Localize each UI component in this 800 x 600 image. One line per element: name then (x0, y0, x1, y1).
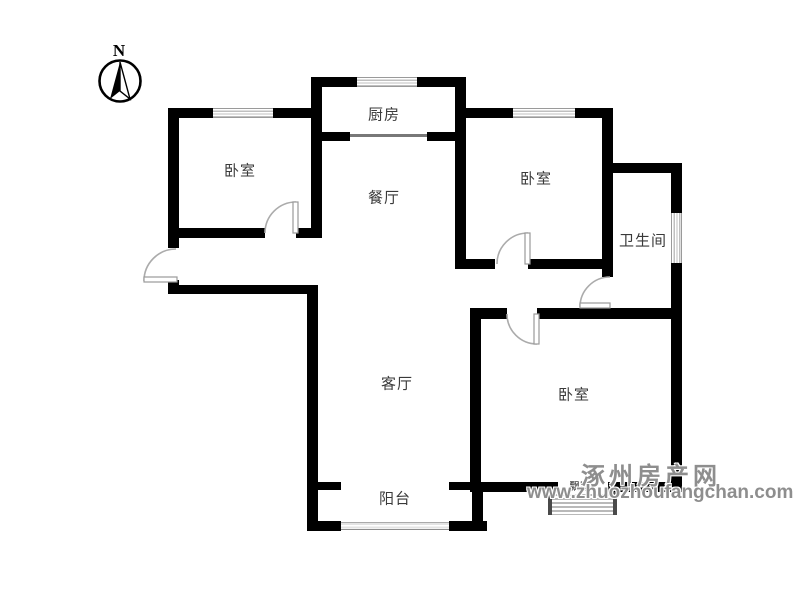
bedroom2-door-leaf (525, 233, 530, 264)
bedroom3-door-arc (507, 314, 537, 344)
room-label-bedroom-top-right: 卧室 (520, 168, 552, 189)
room-label-dining: 餐厅 (368, 187, 400, 208)
bedroom1-door-leaf (293, 202, 298, 233)
watermark-site-url: www.zhuozhoufangchan.com (527, 482, 793, 504)
room-label-kitchen: 厨房 (368, 104, 400, 125)
bedroom3-door-leaf (534, 314, 539, 344)
bedroom1-door-arc (265, 202, 296, 233)
door-swings-layer (0, 0, 800, 600)
room-label-bedroom-top-left: 卧室 (224, 160, 256, 181)
room-label-balcony: 阳台 (379, 488, 411, 509)
bathroom-door-leaf (580, 303, 610, 308)
bedroom2-door-arc (497, 233, 528, 264)
room-label-living-room: 客厅 (381, 373, 413, 394)
entrance-door-arc (144, 249, 176, 281)
entrance-door-leaf (144, 277, 177, 282)
room-label-bathroom: 卫生间 (619, 230, 667, 251)
floor-plan: N 厨房 餐厅 卧室 卧室 卫生间 客厅 卧室 阳台 飘窗 涿州房产网 www.… (0, 0, 800, 600)
room-label-bedroom-bottom-right: 卧室 (558, 384, 590, 405)
